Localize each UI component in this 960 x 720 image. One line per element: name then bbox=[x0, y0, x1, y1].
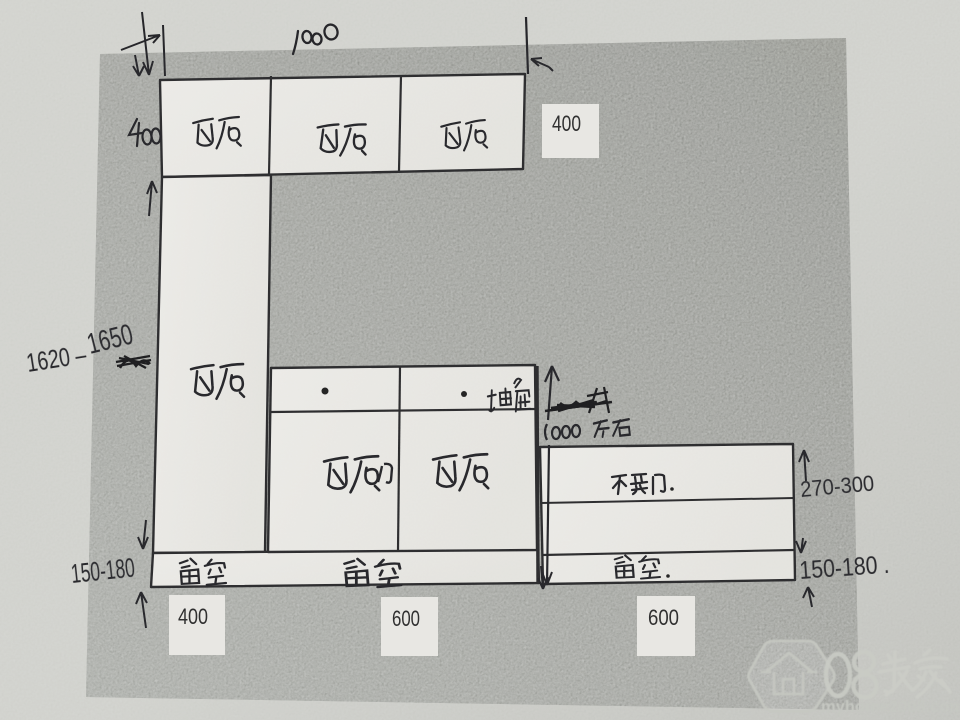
svg-text:400: 400 bbox=[552, 111, 581, 136]
svg-text:400: 400 bbox=[178, 604, 208, 629]
svg-text:600: 600 bbox=[648, 605, 679, 630]
svg-text:myhome2008.com: myhome2008.com bbox=[821, 698, 960, 716]
svg-text:600: 600 bbox=[392, 606, 420, 631]
